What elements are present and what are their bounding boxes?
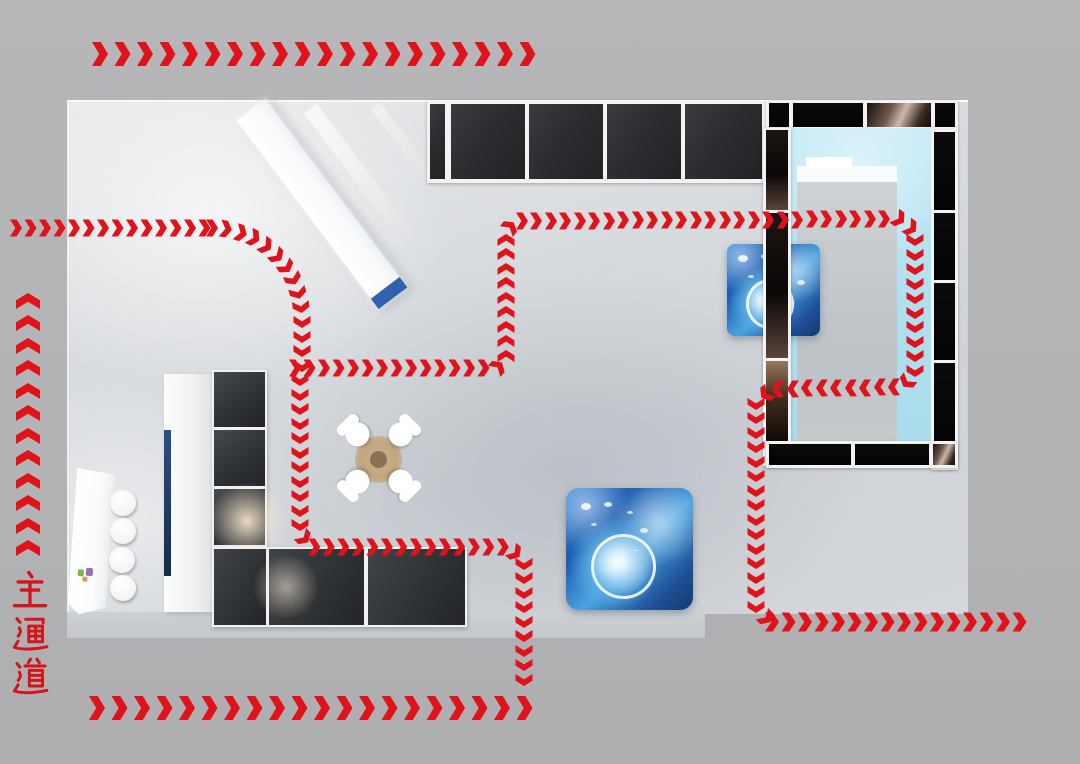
wall-panel-lit bbox=[766, 361, 788, 441]
shelf-cell bbox=[214, 489, 265, 545]
wall-panel bbox=[934, 132, 955, 210]
wall-top-right bbox=[766, 100, 958, 130]
map-graphic bbox=[738, 255, 748, 262]
logo-mark bbox=[78, 569, 84, 576]
exit-east-chevron bbox=[996, 613, 1010, 632]
main-aisle-bottom-chevron bbox=[179, 696, 195, 720]
main-aisle-top-chevron bbox=[520, 42, 536, 66]
main-aisle-top-chevron bbox=[340, 42, 356, 66]
main-aisle-top-chevron bbox=[182, 42, 198, 66]
char-zhu bbox=[10, 570, 50, 610]
main-aisle-bottom-chevron bbox=[247, 696, 263, 720]
pool-white-step bbox=[806, 157, 852, 169]
exit-east-chevron bbox=[815, 613, 829, 632]
shelf-cell bbox=[214, 430, 265, 486]
wall-panel bbox=[430, 104, 445, 179]
main-aisle-top-chevron bbox=[205, 42, 221, 66]
main-aisle-top-chevron bbox=[295, 42, 311, 66]
main-aisle-bottom-chevron bbox=[382, 696, 398, 720]
wall-panel bbox=[793, 103, 863, 127]
main-aisle-left-chevron bbox=[16, 518, 40, 534]
main-aisle-top-chevron bbox=[160, 42, 176, 66]
main-aisle-left-chevron bbox=[16, 315, 40, 331]
main-aisle-left-chevron bbox=[16, 495, 40, 511]
main-aisle-left-chevron bbox=[16, 405, 40, 421]
display-screen-center bbox=[566, 488, 693, 610]
main-aisle-label: 主通道 bbox=[8, 570, 52, 696]
round-table-center bbox=[370, 451, 387, 468]
stool bbox=[110, 575, 136, 601]
main-aisle-left-chevron bbox=[16, 428, 40, 444]
exit-east-chevron bbox=[980, 613, 994, 632]
exit-east-chevron bbox=[798, 613, 812, 632]
main-aisle-bottom-chevron bbox=[224, 696, 240, 720]
entry-west-chevron bbox=[25, 220, 37, 237]
exit-east-chevron bbox=[782, 613, 796, 632]
exit-east-chevron bbox=[848, 613, 862, 632]
globe-graphic bbox=[591, 534, 655, 599]
exit-east-chevron bbox=[914, 613, 928, 632]
exit-east-chevron bbox=[1013, 613, 1027, 632]
main-aisle-top-chevron bbox=[362, 42, 378, 66]
wall-panel bbox=[934, 283, 955, 360]
main-aisle-top-chevron bbox=[92, 42, 108, 66]
main-aisle-bottom-chevron bbox=[337, 696, 353, 720]
main-aisle-bottom-chevron bbox=[449, 696, 465, 720]
exit-east-chevron bbox=[930, 613, 944, 632]
main-aisle-top-chevron bbox=[137, 42, 153, 66]
exit-east-chevron bbox=[831, 613, 845, 632]
main-aisle-left-chevron bbox=[16, 473, 40, 489]
main-aisle-bottom-chevron bbox=[472, 696, 488, 720]
inner-loop-south-chevron bbox=[516, 674, 533, 686]
main-aisle-left-chevron bbox=[16, 540, 40, 556]
main-aisle-top-chevron bbox=[250, 42, 266, 66]
booth-floorplan: 主通道 bbox=[0, 0, 1080, 764]
main-aisle-left-chevron bbox=[16, 338, 40, 354]
main-aisle-bottom-chevron bbox=[494, 696, 510, 720]
entry-west-chevron bbox=[10, 220, 22, 237]
wall-panel bbox=[766, 130, 788, 210]
main-aisle-left-chevron bbox=[16, 383, 40, 399]
main-aisle-top-chevron bbox=[317, 42, 333, 66]
wall-panel bbox=[934, 213, 955, 280]
main-aisle-bottom-chevron bbox=[134, 696, 150, 720]
exit-east-chevron bbox=[881, 613, 895, 632]
logo-mark bbox=[82, 576, 87, 581]
shelf-column bbox=[212, 370, 267, 547]
wall-panel bbox=[685, 104, 762, 179]
entry-west-chevron bbox=[39, 220, 51, 237]
map-graphic bbox=[581, 503, 591, 510]
shelf-cell bbox=[368, 549, 465, 625]
wall-strip-inner bbox=[763, 128, 791, 466]
wall-panel bbox=[935, 103, 955, 127]
wall-panel-bronze bbox=[933, 444, 955, 465]
exit-east-chevron bbox=[897, 613, 911, 632]
main-aisle-bottom-chevron bbox=[517, 696, 533, 720]
main-aisle-top-chevron bbox=[227, 42, 243, 66]
wall-panel bbox=[769, 103, 789, 127]
main-aisle-bottom-chevron bbox=[314, 696, 330, 720]
inner-loop-south-chevron bbox=[516, 659, 533, 671]
main-aisle-top-chevron bbox=[452, 42, 468, 66]
wall-panel bbox=[607, 104, 681, 179]
main-aisle-bottom-chevron bbox=[292, 696, 308, 720]
main-aisle-top-chevron bbox=[407, 42, 423, 66]
inner-loop-south-chevron bbox=[516, 645, 533, 657]
stool bbox=[110, 518, 136, 544]
char-tong bbox=[10, 613, 50, 653]
main-aisle-bottom-chevron bbox=[404, 696, 420, 720]
exit-east-chevron bbox=[765, 613, 779, 632]
main-aisle-top-chevron bbox=[430, 42, 446, 66]
stool bbox=[110, 490, 136, 516]
main-aisle-top-chevron bbox=[385, 42, 401, 66]
wall-panel bbox=[766, 213, 788, 358]
wall-panel bbox=[451, 104, 525, 179]
wall-panel bbox=[529, 104, 603, 179]
main-aisle-bottom-chevron bbox=[359, 696, 375, 720]
main-aisle-bottom-chevron bbox=[112, 696, 128, 720]
wall-panel bbox=[769, 444, 851, 465]
cabinet-blue-strip bbox=[164, 430, 171, 576]
shelf-cell bbox=[214, 549, 266, 625]
shelf-cell bbox=[269, 549, 364, 625]
main-aisle-bottom-chevron bbox=[202, 696, 218, 720]
main-aisle-bottom-chevron bbox=[89, 696, 105, 720]
wall-pool-bottom bbox=[766, 441, 958, 468]
entry-west-chevron bbox=[54, 220, 66, 237]
main-aisle-left-chevron bbox=[16, 360, 40, 376]
main-aisle-top-chevron bbox=[272, 42, 288, 66]
main-aisle-left-chevron bbox=[16, 293, 40, 309]
shelf-row bbox=[212, 547, 467, 627]
display-cabinet bbox=[164, 374, 212, 612]
wall-right bbox=[931, 130, 958, 470]
wall-panel bbox=[934, 363, 955, 441]
wall-top bbox=[427, 100, 766, 183]
main-aisle-top-chevron bbox=[115, 42, 131, 66]
exit-east-chevron bbox=[864, 613, 878, 632]
main-aisle-bottom-chevron bbox=[427, 696, 443, 720]
main-aisle-top-chevron bbox=[475, 42, 491, 66]
main-aisle-bottom-chevron bbox=[269, 696, 285, 720]
main-aisle-bottom-chevron bbox=[157, 696, 173, 720]
wall-panel bbox=[855, 444, 929, 465]
stool bbox=[109, 547, 135, 573]
wall-panel-bronze bbox=[867, 103, 931, 127]
main-aisle-left-chevron bbox=[16, 450, 40, 466]
char-dao bbox=[10, 656, 50, 696]
main-aisle-top-chevron bbox=[497, 42, 513, 66]
shelf-cell bbox=[214, 372, 265, 427]
logo-mark bbox=[86, 568, 94, 576]
exit-east-chevron bbox=[947, 613, 961, 632]
exit-east-chevron bbox=[963, 613, 977, 632]
